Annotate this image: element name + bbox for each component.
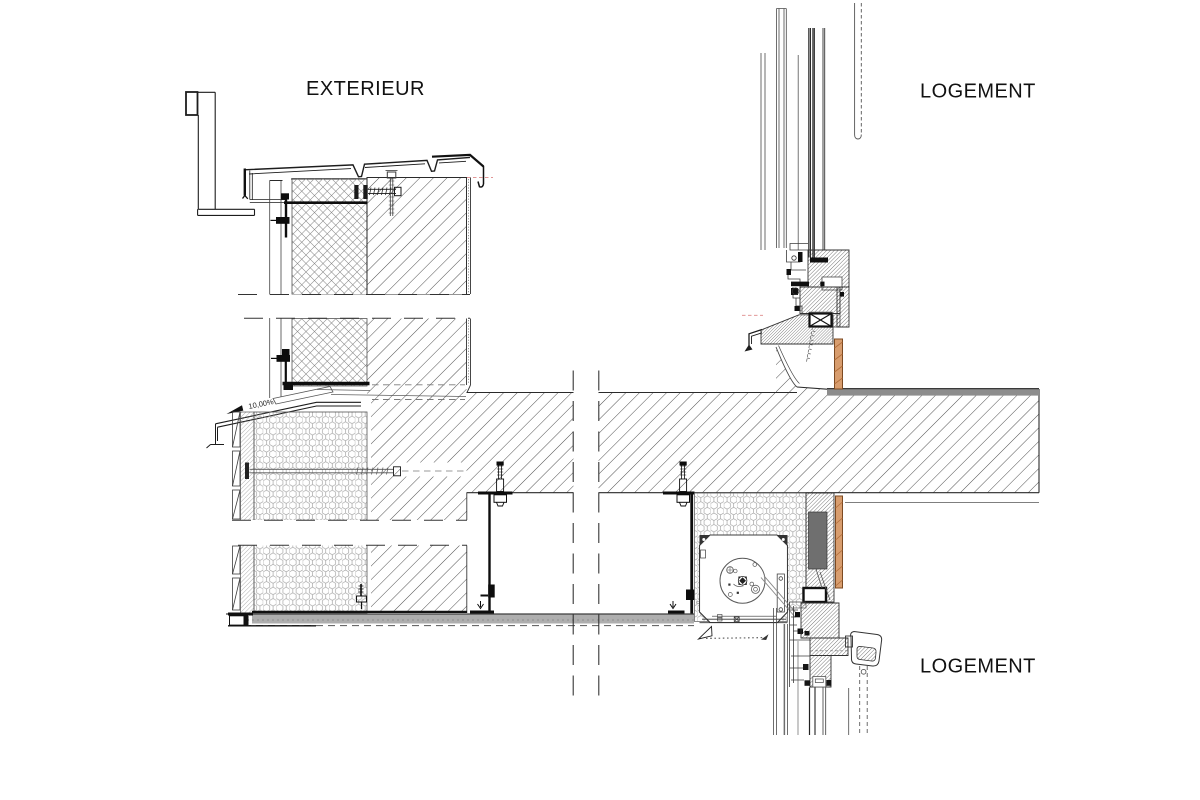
svg-text:LOGEMENT: LOGEMENT: [920, 81, 1036, 103]
svg-text:EXTERIEUR: EXTERIEUR: [306, 78, 425, 100]
svg-text:LOGEMENT: LOGEMENT: [920, 656, 1036, 678]
